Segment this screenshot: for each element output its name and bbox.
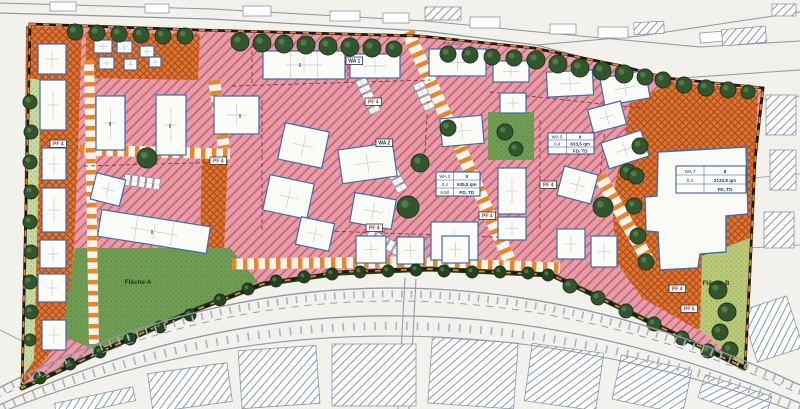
existing-building	[598, 27, 628, 38]
tree-icon	[632, 138, 648, 154]
tree-icon	[591, 291, 605, 305]
tree-icon	[571, 59, 589, 77]
parcel-table-cell: WA 3	[439, 174, 450, 179]
storeys-label: II	[109, 122, 112, 128]
tree-icon	[386, 41, 402, 57]
pf-marker-box-label: PF 4	[368, 100, 379, 106]
storeys-label: II	[151, 230, 154, 236]
tree-icon	[24, 185, 38, 199]
tree-icon	[440, 46, 456, 62]
tree-icon	[497, 124, 513, 140]
plan-svg: WA 3II0,4535,5 qm6,50FD, TDWA 5II0,4633,…	[0, 0, 800, 409]
tree-icon	[397, 196, 419, 218]
existing-building	[550, 24, 576, 34]
parcel-table-cell: WA 5	[552, 134, 563, 139]
tree-icon	[24, 125, 38, 139]
existing-building	[764, 212, 794, 248]
tree-icon	[466, 266, 478, 278]
existing-building	[766, 95, 796, 135]
tree-icon	[615, 65, 633, 83]
parcel-table: WA 5II0,4633,5 qmFD, TD	[548, 133, 594, 154]
tree-icon	[718, 303, 736, 321]
building-footprint	[442, 236, 469, 263]
existing-building	[243, 6, 271, 16]
existing-building	[330, 11, 360, 21]
existing-building	[721, 26, 766, 46]
tree-icon	[637, 69, 653, 85]
parking-stall	[131, 175, 138, 187]
existing-building	[332, 344, 416, 406]
tree-icon	[720, 82, 736, 98]
tree-icon	[354, 266, 366, 278]
tree-icon	[382, 265, 394, 277]
building-footprint	[498, 168, 526, 214]
wa-zone-box: WA 1	[346, 57, 363, 65]
area-size-label: 236,4 qm	[277, 43, 296, 48]
parcel-table-cell: 535,5 qm	[457, 182, 477, 187]
existing-building	[428, 337, 518, 409]
tree-icon	[542, 269, 554, 281]
tree-icon	[549, 55, 567, 73]
tree-icon	[297, 36, 315, 54]
building-footprint	[140, 46, 154, 57]
tree-icon	[23, 275, 37, 289]
parking-stall	[146, 177, 153, 189]
existing-building	[425, 7, 461, 20]
tree-icon	[411, 154, 429, 172]
building-footprint	[94, 40, 112, 53]
pf-marker-box: PF 4	[479, 212, 496, 220]
pf-marker-box: PF 4	[540, 181, 557, 189]
zone-label-flaeche_a: Fläche A	[125, 279, 152, 286]
tree-icon	[619, 304, 633, 318]
tree-icon	[626, 198, 642, 214]
existing-building	[50, 2, 76, 11]
building-footprint	[149, 57, 161, 67]
pf-marker-box-label: PF 4	[672, 287, 683, 293]
existing-building	[470, 17, 500, 28]
tree-icon	[563, 279, 577, 293]
existing-building	[238, 345, 320, 408]
building-footprint	[38, 274, 66, 302]
tree-icon	[698, 80, 714, 96]
building-footprint	[40, 80, 66, 130]
existing-building	[634, 21, 665, 35]
parcel-table-cell: FD, TD	[718, 187, 733, 192]
tree-icon	[67, 24, 83, 40]
pf-marker-box: PF 4	[210, 157, 227, 165]
pf-marker-box-label: PF 4	[213, 159, 224, 165]
parking-stall	[138, 176, 145, 188]
building-footprint	[124, 59, 137, 70]
building-footprint	[42, 148, 66, 180]
building-footprint	[397, 237, 424, 264]
pf-marker-box: PF 5	[681, 305, 698, 313]
pf-marker-box-label: PF 4	[543, 183, 554, 189]
pf-marker-box: PF 4	[50, 140, 67, 148]
building-footprint	[42, 188, 66, 232]
tree-icon	[341, 38, 359, 56]
pf-marker-box: PF 4	[366, 224, 383, 232]
tree-icon	[24, 245, 38, 259]
wa-zone-box: WA 2	[376, 139, 393, 147]
parcel-table-cell: WA 7	[685, 169, 696, 174]
tree-icon	[242, 283, 254, 295]
tree-icon	[522, 267, 534, 279]
area-size-label: 206,4 qm	[443, 41, 462, 46]
tree-icon	[363, 39, 381, 57]
existing-building	[770, 150, 796, 190]
zone-label-flaeche_b: Fläche B	[702, 280, 729, 287]
tree-icon	[298, 271, 310, 283]
tree-icon	[319, 37, 337, 55]
building-footprint	[557, 229, 585, 259]
building-footprint	[500, 93, 526, 113]
tree-icon	[410, 264, 422, 276]
building-footprint	[99, 57, 114, 69]
parcel-table-cell: 0,4	[554, 141, 561, 146]
site-plan-map: WA 3II0,4535,5 qm6,50FD, TDWA 5II0,4633,…	[0, 0, 800, 409]
tree-icon	[440, 120, 456, 136]
storeys-label: II	[299, 63, 302, 69]
tree-icon	[214, 294, 226, 306]
parcel-table-cell: 2133,9 qm	[714, 178, 736, 183]
tree-icon	[628, 168, 644, 184]
tree-icon	[593, 62, 611, 80]
building-footprint	[498, 217, 526, 240]
parcel-table-cell: FD, TD	[459, 190, 474, 195]
pf-marker-box-label: PF 4	[369, 226, 380, 232]
tree-icon	[177, 28, 193, 44]
tree-icon	[111, 26, 127, 42]
building-footprint	[338, 142, 397, 183]
wa-zone-box-label: WA 1	[348, 59, 360, 65]
parking-stall	[153, 178, 160, 190]
existing-building	[524, 343, 603, 409]
tree-icon	[24, 334, 36, 346]
building-footprint	[591, 236, 617, 267]
parcel-table-cell: II	[724, 169, 727, 174]
building-footprint	[42, 320, 66, 350]
tree-icon	[494, 266, 506, 278]
tree-icon	[712, 324, 728, 340]
tree-icon	[655, 72, 671, 88]
tree-icon	[23, 215, 37, 229]
pf-marker-box-label: PF 4	[482, 214, 493, 220]
tree-icon	[593, 197, 613, 217]
building-footprint	[356, 236, 386, 263]
pf-marker-box-label: PF 5	[684, 307, 695, 313]
parcel-table-cell: 0,4	[687, 178, 694, 183]
parcel-table-cell: FD, TD	[573, 148, 588, 153]
building-footprint	[40, 240, 66, 268]
building-footprint	[263, 51, 345, 79]
tree-icon	[484, 49, 500, 65]
building-footprint	[117, 41, 132, 53]
existing-building	[145, 4, 169, 13]
tree-icon	[155, 28, 171, 44]
parcel-table-cell: 0,4	[442, 182, 449, 187]
tree-icon	[253, 34, 271, 52]
existing-building	[383, 13, 409, 23]
tree-icon	[270, 275, 282, 287]
tree-icon	[89, 25, 105, 41]
tree-icon	[630, 228, 646, 244]
tree-icon	[23, 155, 37, 169]
tree-icon	[638, 254, 654, 270]
tree-icon	[509, 142, 523, 156]
parcel-table: WA 7II0,42133,9 qmFD, TD	[676, 166, 746, 193]
building-footprint	[214, 96, 259, 134]
parcel-table-cell: 633,5 qm	[570, 141, 590, 146]
tree-icon	[23, 95, 37, 109]
storeys-label: II	[169, 124, 172, 130]
existing-building	[772, 4, 796, 16]
wa-zone-box-label: WA 2	[378, 141, 390, 147]
tree-icon	[326, 268, 338, 280]
parcel-table-cell: II	[579, 134, 582, 139]
storeys-label: II	[239, 114, 242, 120]
tree-icon	[231, 33, 249, 51]
tree-icon	[741, 85, 755, 99]
pf-marker-box: PF 4	[669, 285, 686, 293]
pf-marker-box-label: PF 4	[53, 142, 64, 148]
tree-icon	[24, 305, 38, 319]
tree-icon	[527, 51, 545, 69]
tree-icon	[438, 265, 450, 277]
parcel-table-cell: II	[466, 174, 469, 179]
tree-icon	[676, 77, 692, 93]
tree-icon	[133, 27, 149, 43]
tree-icon	[462, 47, 478, 63]
parcel-table-cell: 6,50	[440, 190, 449, 195]
tree-icon	[137, 148, 157, 168]
tree-icon	[506, 50, 522, 66]
pf-marker-box: PF 4	[365, 98, 382, 106]
parcel-table: WA 3II0,4535,5 qm6,50FD, TD	[436, 172, 480, 196]
building-footprint	[38, 44, 66, 74]
